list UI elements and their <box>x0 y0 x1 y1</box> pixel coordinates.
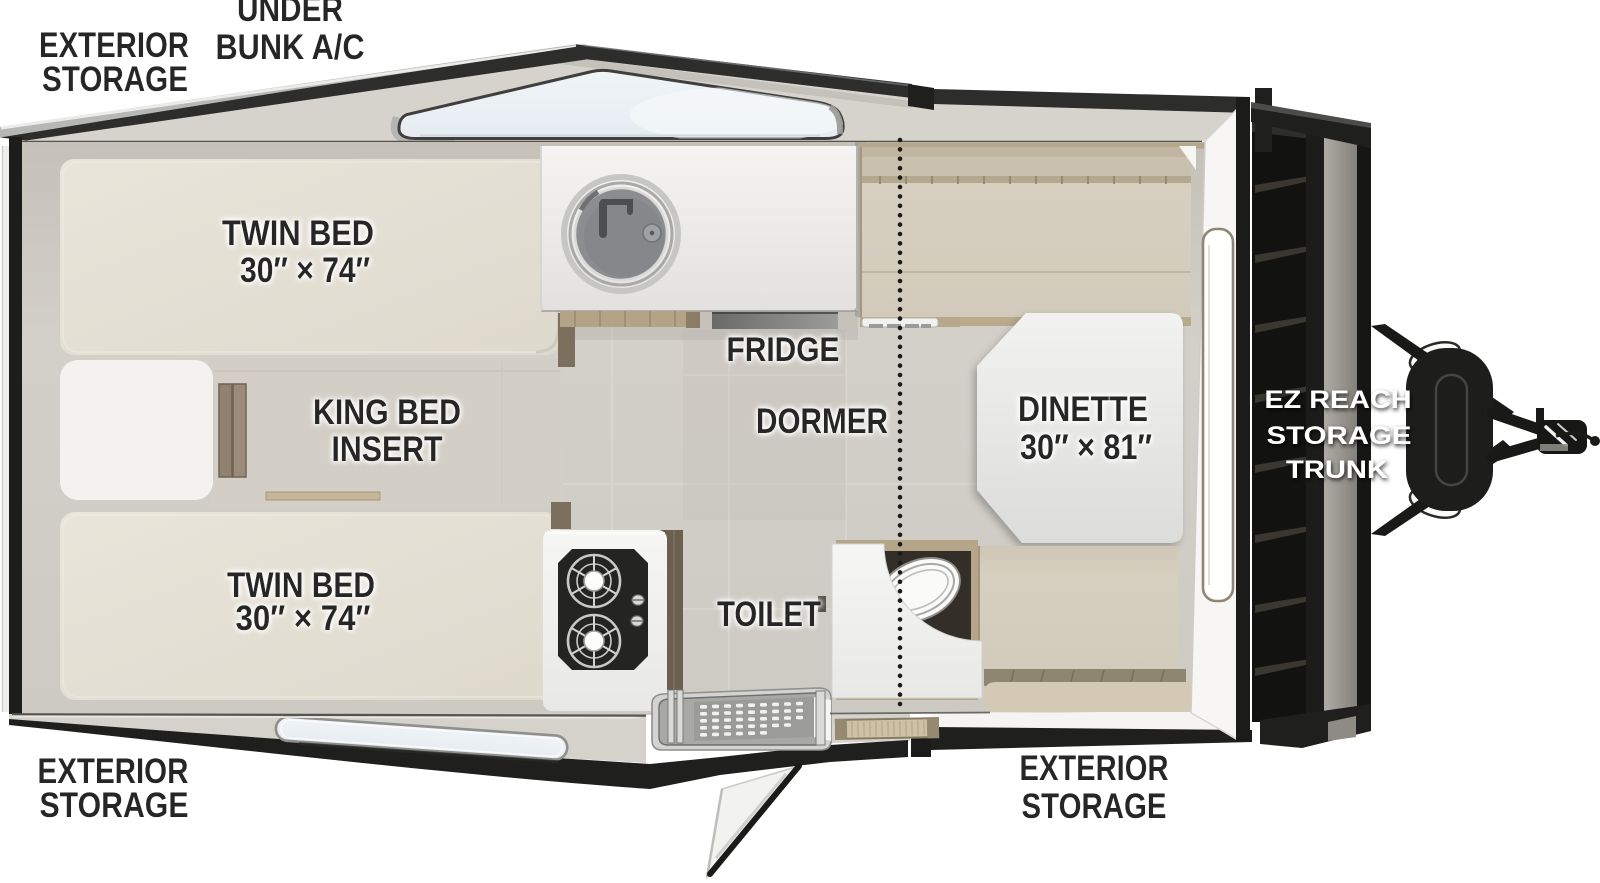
svg-text:STORAGE: STORAGE <box>1267 422 1412 450</box>
svg-text:STORAGE: STORAGE <box>40 786 189 825</box>
svg-text:DINETTE: DINETTE <box>1018 390 1148 429</box>
svg-text:STORAGE: STORAGE <box>42 60 188 99</box>
svg-text:TOILET: TOILET <box>717 595 821 634</box>
svg-text:EXTERIOR: EXTERIOR <box>1020 749 1169 788</box>
svg-text:TWIN BED: TWIN BED <box>222 214 374 253</box>
svg-text:STORAGE: STORAGE <box>1022 787 1167 826</box>
svg-text:UNDER: UNDER <box>237 0 343 29</box>
svg-text:EZ REACH: EZ REACH <box>1265 386 1412 414</box>
svg-text:30″ × 81″: 30″ × 81″ <box>1020 428 1152 467</box>
svg-text:INSERT: INSERT <box>332 430 443 469</box>
svg-text:BUNK A/C: BUNK A/C <box>216 28 365 67</box>
svg-text:30″ × 74″: 30″ × 74″ <box>236 599 371 638</box>
svg-text:FRIDGE: FRIDGE <box>727 331 840 369</box>
svg-text:DORMER: DORMER <box>756 402 888 441</box>
svg-text:KING BED: KING BED <box>313 393 461 432</box>
svg-text:30″ × 74″: 30″ × 74″ <box>240 251 370 290</box>
svg-text:TRUNK: TRUNK <box>1286 456 1388 484</box>
